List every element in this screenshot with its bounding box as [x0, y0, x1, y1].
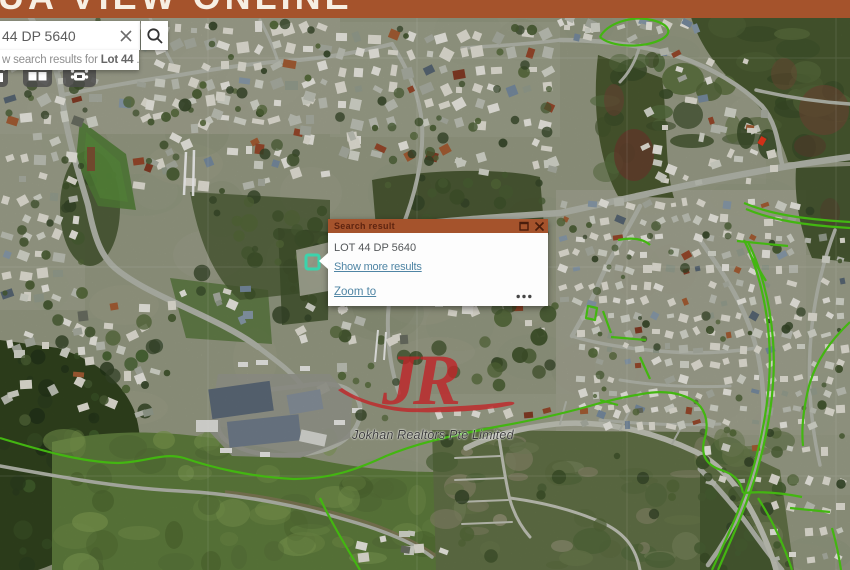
svg-text:JR: JR — [381, 346, 459, 416]
